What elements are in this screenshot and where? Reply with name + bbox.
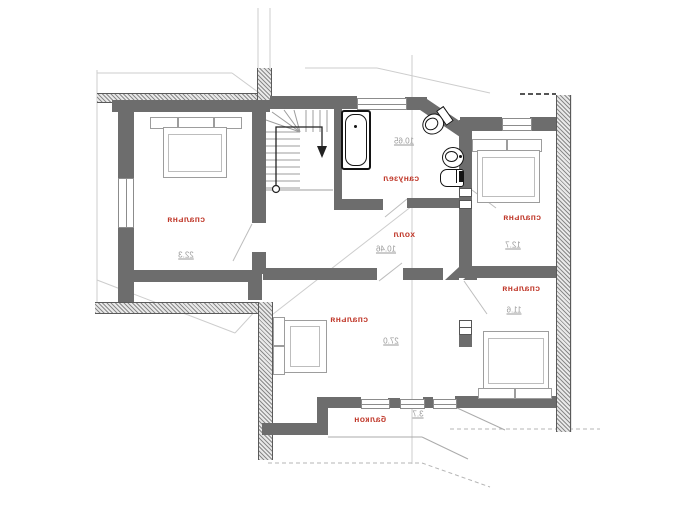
wall-segment — [317, 397, 328, 435]
toilet-bowl-inner — [422, 115, 440, 133]
sink-tap — [459, 155, 462, 158]
wall-segment — [118, 270, 258, 282]
wall-segment — [459, 208, 472, 266]
bidet-cistern — [459, 171, 463, 182]
room-area-bedroom-top-right: 12.7 — [505, 241, 521, 250]
bed-blanket — [290, 326, 320, 367]
wall-segment — [270, 96, 357, 109]
roof-and-line-overlay — [0, 0, 700, 525]
window — [502, 118, 532, 131]
wall-segment — [262, 423, 318, 435]
room-label-bathroom: санузел — [383, 173, 419, 183]
wall-segment — [334, 199, 383, 210]
wall-segment — [112, 100, 270, 112]
wall-segment — [248, 270, 262, 300]
bidet-seat-line — [456, 170, 457, 183]
door-jamb — [459, 327, 472, 335]
roof-edge-hatch — [95, 302, 262, 314]
bed — [477, 150, 540, 203]
room-area-bedroom-bottom: 27.0 — [383, 337, 399, 346]
window — [433, 399, 457, 409]
room-label-hall: холл — [393, 229, 415, 239]
bed-blanket — [482, 157, 535, 197]
bathtub-drain — [354, 125, 357, 128]
door-jamb — [459, 200, 472, 209]
window — [118, 178, 134, 228]
bathtub-inner — [345, 114, 367, 166]
room-label-bedroom-right: спальня — [502, 283, 540, 293]
sink — [442, 147, 464, 168]
wall-segment — [459, 266, 556, 278]
roof-overhang-dashed-lines — [268, 429, 600, 487]
wall-segment — [407, 198, 461, 208]
bidet — [440, 169, 464, 187]
roof-edge-hatch — [556, 95, 571, 432]
bed-blanket — [488, 338, 544, 384]
window — [400, 399, 425, 409]
roof-edge-hatch — [258, 302, 273, 460]
bed — [284, 320, 327, 373]
window — [361, 399, 390, 409]
room-area-balcony: 3.7 — [412, 410, 423, 419]
bed — [163, 127, 227, 178]
wall-segment — [263, 268, 377, 280]
wall-segment — [403, 268, 443, 280]
stair-direction-arrow — [273, 127, 328, 193]
room-area-bedroom-top-left: 22.3 — [178, 251, 194, 260]
wall-segment — [118, 226, 134, 302]
door-jamb — [459, 188, 472, 197]
window — [357, 98, 407, 110]
room-label-bedroom-top-left: спальня — [167, 214, 205, 224]
room-area-bathroom: 10.65 — [394, 137, 414, 146]
room-label-bedroom-bottom: спальня — [330, 314, 368, 324]
room-label-bedroom-top-right: спальня — [503, 212, 541, 222]
wall-segment — [459, 333, 472, 347]
bed-headboard — [515, 388, 552, 399]
stair-treads — [266, 110, 333, 190]
wall-segment — [530, 117, 556, 131]
bed-headboard — [478, 388, 515, 399]
bathtub — [341, 110, 371, 170]
floor-plan: спальня 22.3 10.65 санузел спальня 12.7 … — [0, 0, 700, 525]
bed-blanket — [168, 134, 222, 172]
room-area-hall: 10.46 — [376, 245, 396, 254]
room-label-balcony: балкон — [354, 414, 386, 424]
wall-segment — [252, 110, 266, 223]
sink-inner — [445, 151, 458, 162]
bed — [483, 331, 549, 391]
wall-segment — [118, 100, 134, 178]
room-area-bedroom-right: 11.6 — [507, 306, 522, 315]
